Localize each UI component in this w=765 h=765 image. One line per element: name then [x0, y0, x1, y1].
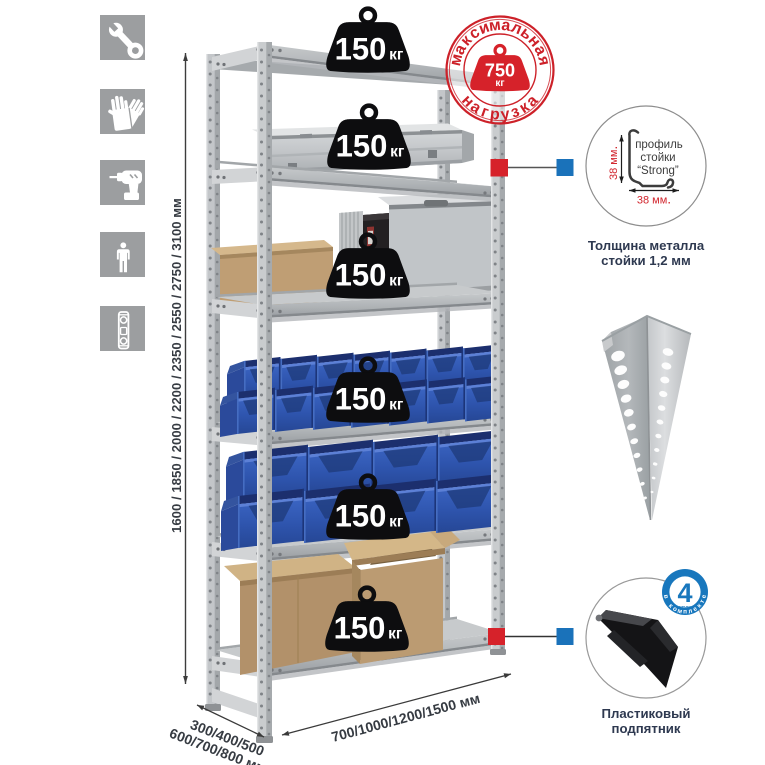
- svg-text:“Strong”: “Strong”: [637, 165, 679, 177]
- svg-text:кг: кг: [389, 397, 404, 414]
- svg-text:подпятник: подпятник: [611, 721, 680, 736]
- svg-text:1600 / 1850 / 2000 / 2200 / 23: 1600 / 1850 / 2000 / 2200 / 2350 / 2550 …: [169, 198, 184, 533]
- svg-text:Толщина металла: Толщина металла: [588, 238, 705, 253]
- svg-text:кг: кг: [389, 273, 404, 290]
- svg-text:кг: кг: [388, 626, 403, 643]
- svg-text:Пластиковый: Пластиковый: [601, 706, 690, 721]
- svg-text:150: 150: [334, 611, 386, 646]
- svg-text:кг: кг: [495, 78, 504, 89]
- svg-text:п: п: [683, 609, 687, 616]
- svg-text:150: 150: [335, 382, 387, 417]
- svg-text:профиль: профиль: [635, 139, 683, 151]
- svg-text:150: 150: [336, 129, 388, 164]
- svg-text:стойки 1,2 мм: стойки 1,2 мм: [601, 253, 691, 268]
- svg-text:кг: кг: [389, 47, 404, 64]
- svg-text:стойки: стойки: [640, 152, 675, 164]
- svg-text:150: 150: [335, 499, 387, 534]
- svg-text:кг: кг: [390, 144, 405, 161]
- svg-text:4: 4: [677, 578, 692, 608]
- svg-text:150: 150: [335, 32, 387, 67]
- svg-text:кг: кг: [389, 514, 404, 531]
- svg-text:150: 150: [335, 258, 387, 293]
